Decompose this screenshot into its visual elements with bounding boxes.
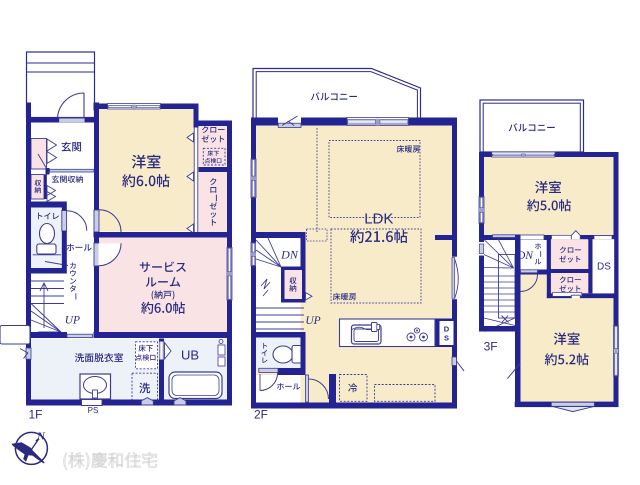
svg-text:D: D — [444, 325, 450, 334]
svg-text:UP: UP — [65, 314, 80, 326]
svg-text:DS: DS — [597, 262, 611, 273]
svg-text:S: S — [444, 334, 449, 343]
svg-text:LDK: LDK — [364, 210, 393, 227]
svg-text:N: N — [36, 431, 45, 442]
svg-text:PS: PS — [88, 406, 99, 415]
svg-text:UB: UB — [181, 348, 199, 363]
svg-text:1F: 1F — [28, 408, 42, 422]
svg-text:UP: UP — [305, 315, 320, 327]
svg-text:2F: 2F — [254, 408, 268, 422]
svg-text:DN: DN — [280, 248, 299, 262]
svg-text:3F: 3F — [484, 340, 498, 354]
